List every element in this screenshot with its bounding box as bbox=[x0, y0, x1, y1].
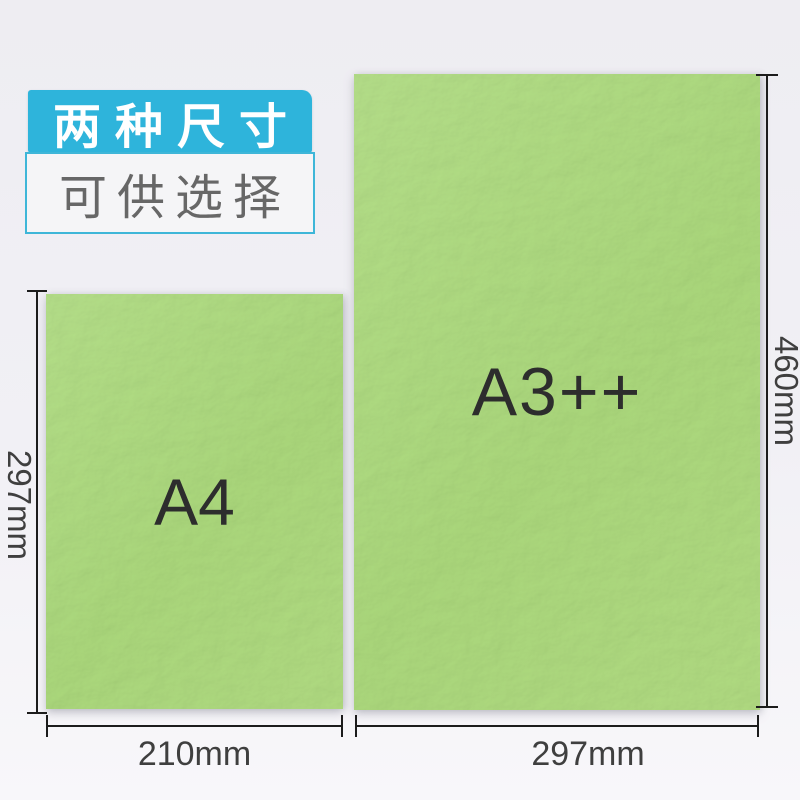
dim-a3pp-width-line bbox=[355, 725, 759, 727]
dim-a3pp-height-label: 460mm bbox=[768, 321, 800, 461]
dim-a3pp-width-tick-right bbox=[757, 715, 759, 737]
dim-a3pp-width-tick-left bbox=[355, 715, 357, 737]
size-badge-subtitle: 可供选择 bbox=[25, 152, 315, 234]
dim-a3pp-height-cap-bottom bbox=[756, 706, 778, 708]
dim-a3pp-width-label: 297mm bbox=[438, 735, 738, 774]
dim-a4-height-cap-bottom bbox=[27, 712, 47, 714]
paper-sheet-a3pp: A3++ bbox=[354, 74, 760, 710]
dim-a4-height-label: 297mm bbox=[1, 435, 37, 575]
dim-a4-width-label: 210mm bbox=[46, 735, 343, 774]
paper-sheet-a4: A4 bbox=[46, 294, 343, 709]
paper-a3pp-label: A3++ bbox=[354, 74, 760, 710]
dim-a4-width-tick-left bbox=[46, 715, 48, 737]
size-badge-title: 两种尺寸 bbox=[28, 90, 312, 153]
product-size-diagram: 两种尺寸 可供选择 A4 A3++ 297mm 210mm 460mm 297m… bbox=[0, 0, 800, 800]
dim-a4-width-line bbox=[46, 725, 343, 727]
paper-a4-label: A4 bbox=[46, 294, 343, 709]
dim-a4-width-tick-right bbox=[341, 715, 343, 737]
